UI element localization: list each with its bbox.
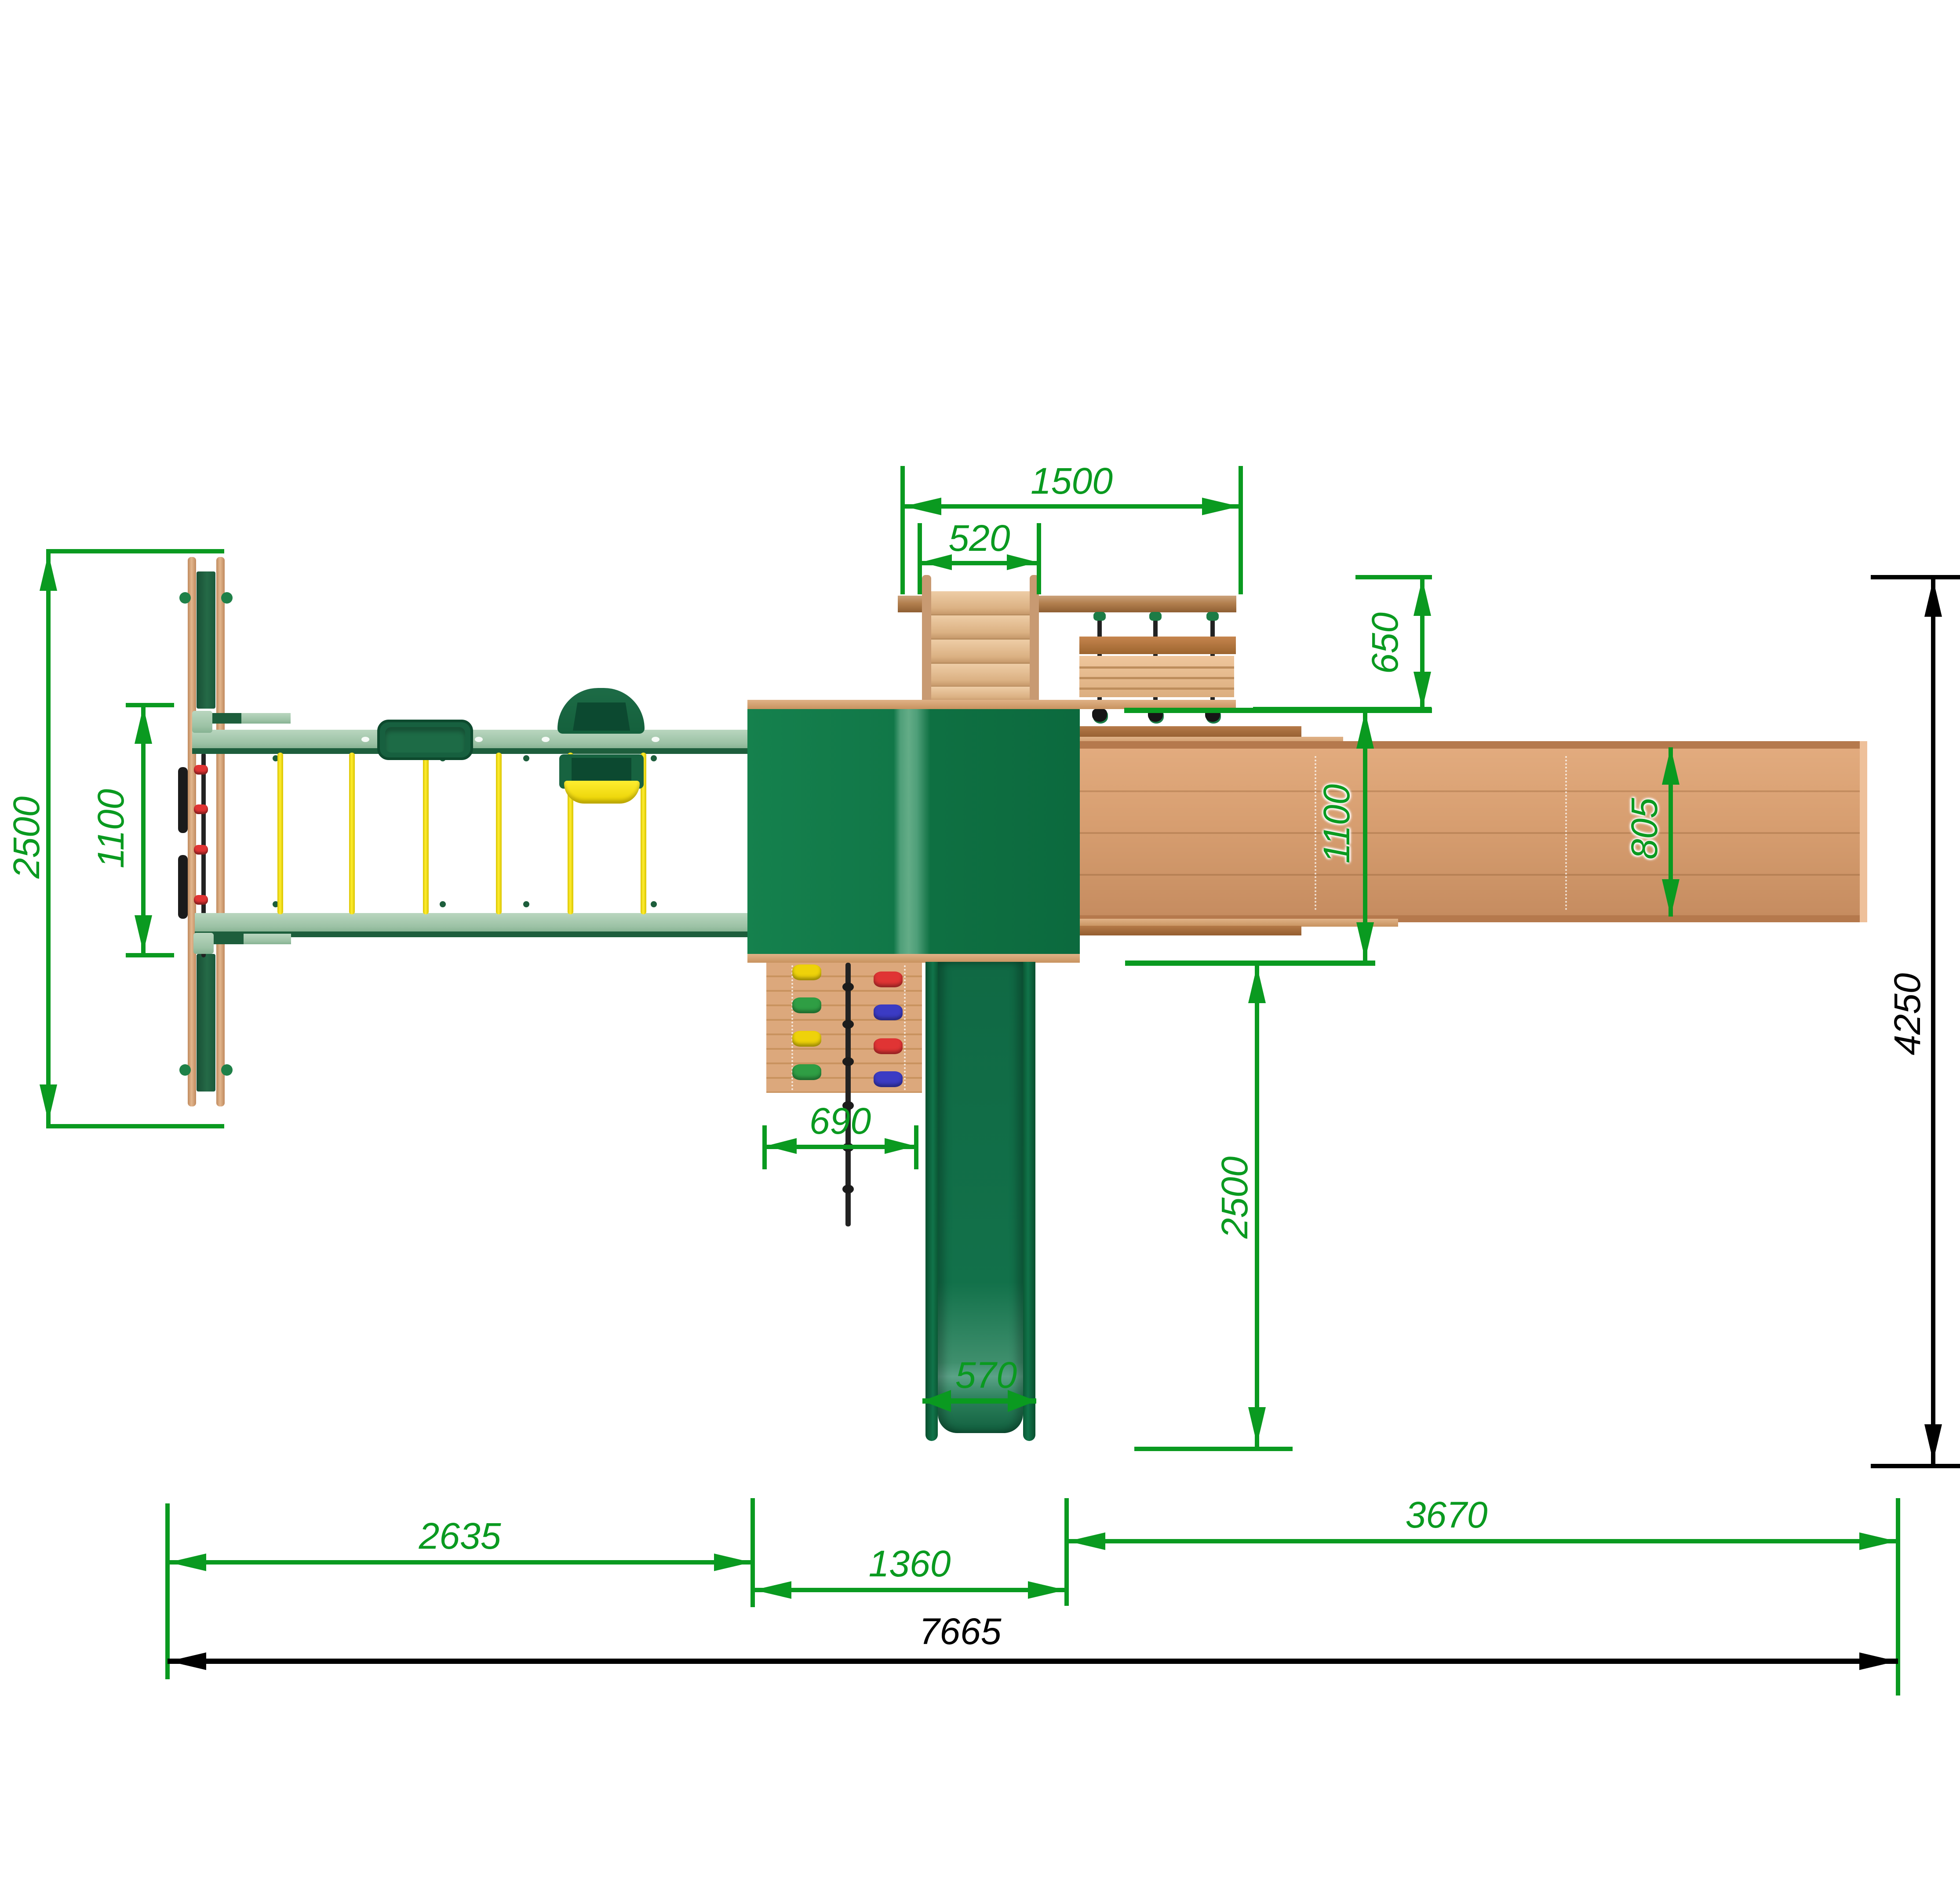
dim-frame-depth-label: 2500 <box>8 763 45 912</box>
arrowhead-icon <box>1068 1532 1105 1550</box>
dim-ladder-span-ext <box>1239 466 1243 594</box>
swing-rope <box>496 753 502 914</box>
arrowhead-icon <box>1414 672 1431 709</box>
climb-hold-blue <box>874 1071 903 1087</box>
beam-bracket-block <box>193 933 214 954</box>
arrowhead-icon <box>40 1084 57 1122</box>
dim-ramp-outer-tick <box>1125 961 1375 966</box>
beam-bolt <box>440 901 446 907</box>
arrowhead-icon <box>1859 1652 1897 1670</box>
ladder-left-rail <box>922 575 931 701</box>
baby-seat-bumper <box>564 781 640 804</box>
beam-hole <box>361 737 369 742</box>
arrowhead-icon <box>1924 579 1942 617</box>
beam-bracket-board <box>212 713 241 724</box>
aframe-bottom-green-panel <box>197 954 215 1092</box>
ramp-end-edge <box>1860 741 1867 922</box>
ladder-step <box>931 640 1030 664</box>
beam-bolt <box>651 755 657 761</box>
aframe-right-post <box>216 557 225 1106</box>
dim-ramp-inner-label: 805 <box>1626 754 1663 903</box>
arrowhead-icon <box>1248 1407 1266 1445</box>
arrowhead-icon <box>1007 554 1038 570</box>
climb-hold-red <box>874 1038 903 1054</box>
swing-rope <box>277 753 283 914</box>
arrowhead-icon <box>904 498 941 515</box>
module-carabiner <box>1149 612 1162 621</box>
dim-frame-inner-tick <box>126 953 174 957</box>
climb-hold-green <box>792 1064 821 1080</box>
climb-hold-yellow <box>792 1031 821 1047</box>
module-upper-board <box>1079 637 1236 654</box>
arrowhead-icon <box>1924 1424 1942 1462</box>
ramp-nail-row <box>1565 756 1567 910</box>
dim-wall-width-label: 690 <box>765 1103 915 1139</box>
module-seat-gap <box>1079 688 1234 690</box>
aframe-left-post <box>188 557 196 1106</box>
beam-bracket-block <box>192 711 212 733</box>
climb-hold-green <box>792 997 821 1013</box>
module-seat-gap <box>1079 666 1234 669</box>
arrowhead-icon <box>714 1554 751 1571</box>
arrowhead-icon <box>40 553 57 591</box>
climb-hold-red <box>874 972 903 987</box>
dim-ladder-span-label: 1500 <box>952 462 1191 499</box>
dim-swing-length-line <box>168 1560 753 1565</box>
ladder-step <box>931 615 1030 640</box>
dim-total-length-label: 7665 <box>850 1613 1070 1650</box>
swing-rope <box>423 753 429 914</box>
rope-knot <box>842 1057 854 1066</box>
beam-bolt <box>523 755 529 761</box>
arrowhead-icon <box>921 554 952 570</box>
aframe-mount-knob <box>179 1064 191 1076</box>
rope-knot <box>842 1185 854 1193</box>
drawing-canvas: 1500 520 650 2500 1100 1100 805 4250 6 <box>0 0 1960 1903</box>
dim-frame-inner-label: 1100 <box>92 754 129 903</box>
dim-slide-clearance-tick <box>1134 1447 1293 1451</box>
ramp-plank-line <box>1068 874 1867 876</box>
dim-total-depth-label: 4250 <box>1889 939 1926 1089</box>
baby-seat-hood-window <box>573 702 630 731</box>
dim-frame-depth-tick <box>46 549 224 553</box>
rope-ladder-red-rung <box>194 895 208 905</box>
dim-total-length-line <box>168 1659 1898 1664</box>
arrowhead-icon <box>135 915 152 953</box>
dim-tower-length-label: 1360 <box>800 1545 1020 1582</box>
beam-hole <box>542 737 550 742</box>
flat-swing-seat-panel <box>385 727 465 753</box>
arrowhead-icon <box>1248 966 1266 1003</box>
arrowhead-icon <box>1356 711 1374 749</box>
arrowhead-icon <box>1202 498 1239 515</box>
module-seat-board <box>1079 656 1234 697</box>
wall-nail-row <box>904 965 906 1090</box>
dim-tower-length-line <box>753 1588 1067 1592</box>
dim-ramp-length-label: 3670 <box>1337 1496 1556 1533</box>
climb-hold-blue <box>874 1004 903 1020</box>
tower-bottom-strip <box>747 954 1080 963</box>
arrowhead-icon <box>1859 1532 1897 1550</box>
dim-ramp-outer-tick <box>1253 707 1432 712</box>
arrowhead-icon <box>1414 579 1431 616</box>
module-seat-gap <box>1079 677 1234 679</box>
ramp-plank-line <box>1068 832 1867 834</box>
dim-ladder-width-label: 520 <box>901 520 1057 557</box>
beam-hole <box>475 737 483 742</box>
aframe-mount-knob <box>221 1064 233 1076</box>
dim-total-depth-tick <box>1871 1464 1960 1468</box>
aframe-top-green-panel <box>197 571 215 709</box>
arrowhead-icon <box>169 1652 206 1670</box>
arrowhead-icon <box>1028 1581 1065 1599</box>
beam-bolt <box>651 901 657 907</box>
dim-slide-width-label: 570 <box>911 1357 1061 1394</box>
dim-total-depth-line <box>1931 577 1935 1466</box>
dim-ramp-outer-label: 1100 <box>1318 749 1355 899</box>
rope-ladder-red-rung <box>194 845 208 855</box>
balcony-lower-dark-board <box>1079 926 1301 935</box>
climb-hold-yellow <box>792 964 821 980</box>
rope-ladder-side-pad <box>178 855 188 919</box>
rope-knot <box>842 1020 854 1029</box>
beam-bracket-board <box>244 934 291 944</box>
swing-bottom-beam <box>195 913 750 932</box>
arrowhead-icon <box>766 1138 797 1154</box>
dim-ramp-length-line <box>1067 1539 1898 1543</box>
arrowhead-icon <box>1662 747 1679 785</box>
dim-module-depth-label: 650 <box>1366 590 1403 696</box>
beam-bracket-board <box>214 934 244 944</box>
module-carabiner <box>1206 612 1219 621</box>
tower-top-strip <box>747 700 1080 709</box>
dim-ladder-span-line <box>903 504 1241 509</box>
swing-rope <box>349 753 355 914</box>
module-end-carabiner <box>1092 709 1107 722</box>
dim-slide-clearance-label: 2500 <box>1216 1123 1253 1272</box>
dim-frame-depth-tick <box>46 1124 224 1128</box>
arrowhead-icon <box>1356 922 1374 960</box>
beam-bolt <box>523 901 529 907</box>
ladder-step <box>931 664 1030 688</box>
arrowhead-icon <box>885 1138 915 1154</box>
arrowhead-icon <box>754 1581 791 1599</box>
aframe-mount-knob <box>179 592 191 604</box>
dim-slide-clearance-line <box>1255 963 1259 1449</box>
rope-ladder-red-rung <box>194 804 208 814</box>
ramp-plank-line <box>1068 790 1867 792</box>
aframe-mount-knob <box>221 592 233 604</box>
rope-ladder-side-pad <box>178 767 188 833</box>
arrowhead-icon <box>1662 879 1679 917</box>
arrowhead-icon <box>135 706 152 744</box>
dim-swing-length-label: 2635 <box>350 1517 570 1554</box>
module-carabiner <box>1093 612 1106 621</box>
rope-knot <box>842 982 854 991</box>
beam-bracket-board <box>241 713 291 724</box>
rope-ladder-red-rung <box>194 765 208 775</box>
dim-total-depth-tick <box>1871 575 1960 579</box>
arrowhead-icon <box>169 1554 206 1571</box>
beam-hole <box>652 737 659 742</box>
tower-roof <box>747 709 1080 954</box>
ramp-top-rail <box>1068 741 1867 749</box>
ladder-step <box>931 591 1030 616</box>
